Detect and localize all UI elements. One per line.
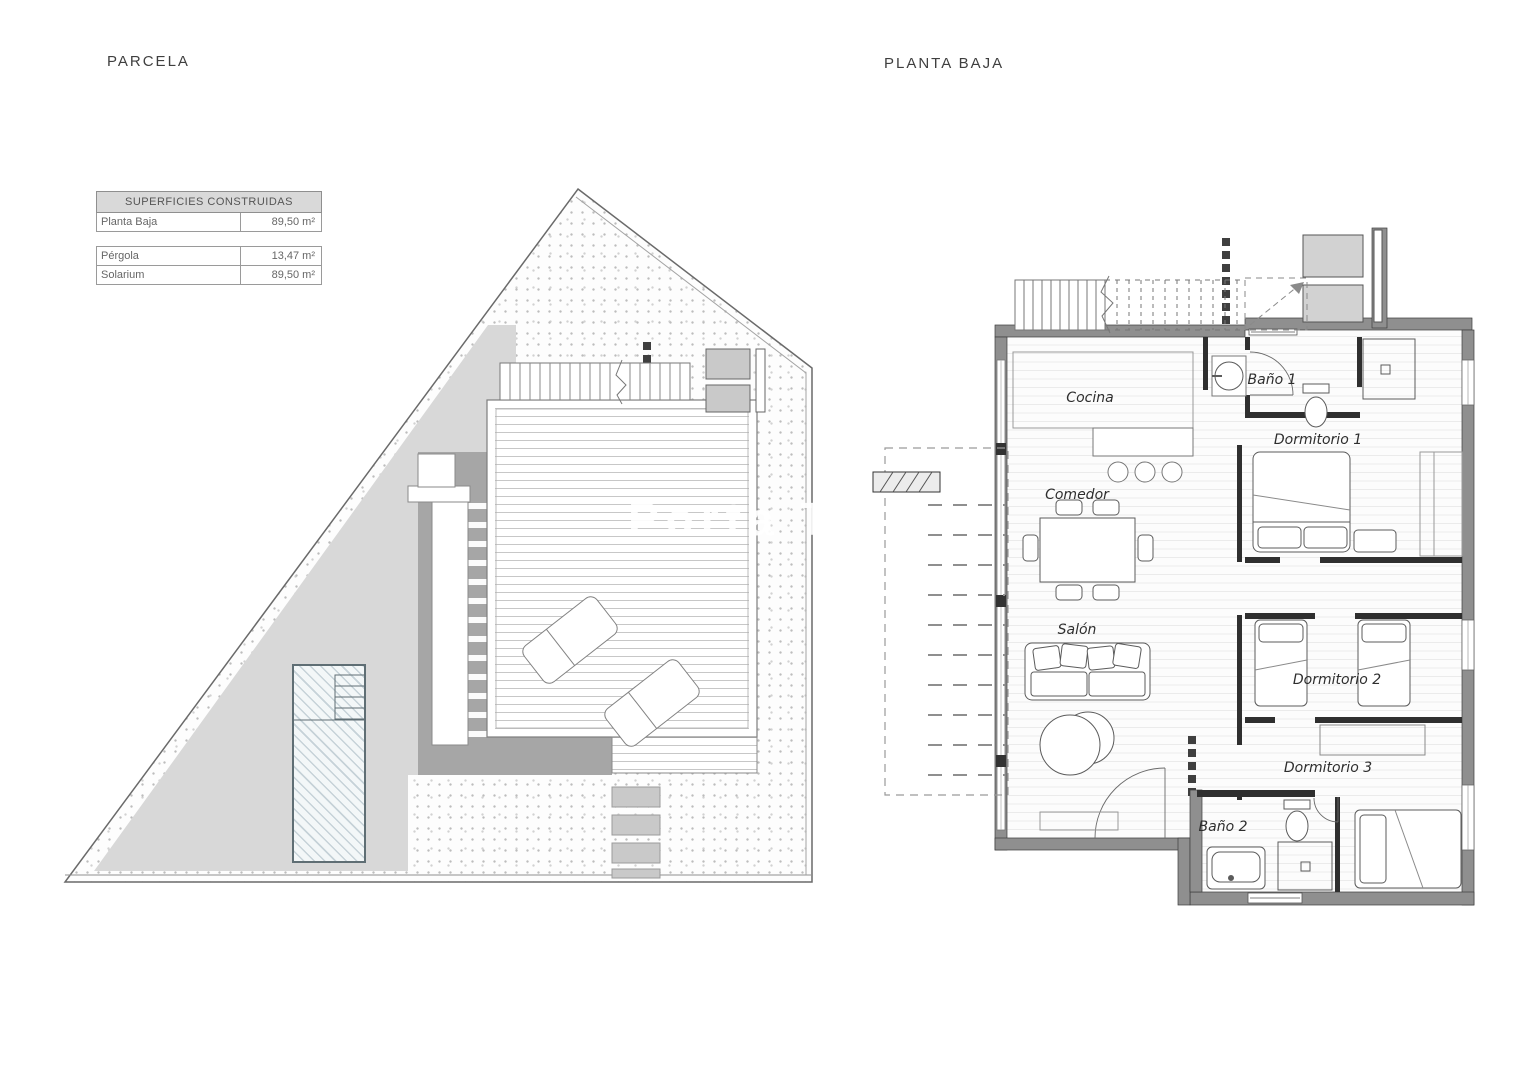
room-label-dormitorio2: Dormitorio 2 [1293, 672, 1381, 688]
bedroom3-furniture [1320, 725, 1461, 888]
room-label-dormitorio3: Dormitorio 3 [1284, 760, 1372, 776]
sofa [1025, 643, 1150, 700]
entrance-stairs [1015, 276, 1240, 333]
kitchen-counter [1013, 352, 1193, 482]
floor-plan-linework [860, 200, 1529, 940]
room-label-salon: Salón [1058, 622, 1097, 638]
drawing-sheet: PARCELA PLANTA BAJA SUPERFICIES CONSTRUI… [0, 0, 1529, 1080]
bedroom2-furniture [1255, 620, 1410, 706]
bathroom1-fixtures [1212, 339, 1415, 427]
bedroom1-furniture [1253, 452, 1462, 556]
walkway [408, 454, 470, 745]
coffee-table [1040, 712, 1114, 775]
room-label-bano2: Baño 2 [1199, 819, 1248, 835]
watermark: Porta T [628, 492, 1108, 554]
pool-outline [293, 665, 365, 862]
bathroom2-fixtures [1207, 800, 1332, 890]
room-label-cocina: Cocina [1066, 390, 1113, 406]
room-label-dormitorio1: Dormitorio 1 [1274, 432, 1362, 448]
floor-plan-title: PLANTA BAJA [884, 55, 1004, 72]
site-stairs [500, 360, 690, 404]
room-label-bano1: Baño 1 [1248, 372, 1297, 388]
site-plan-title: PARCELA [107, 53, 190, 70]
sun-lounger [520, 594, 621, 687]
roof-equipment [706, 349, 765, 412]
interior-partitions [1197, 337, 1462, 892]
floor-plan: Cocina Comedor Salón Baño 1 Dormitorio 1… [860, 200, 1529, 940]
roof-equipment [1303, 230, 1382, 322]
garden-steps [612, 787, 660, 878]
doormat [1040, 812, 1118, 830]
